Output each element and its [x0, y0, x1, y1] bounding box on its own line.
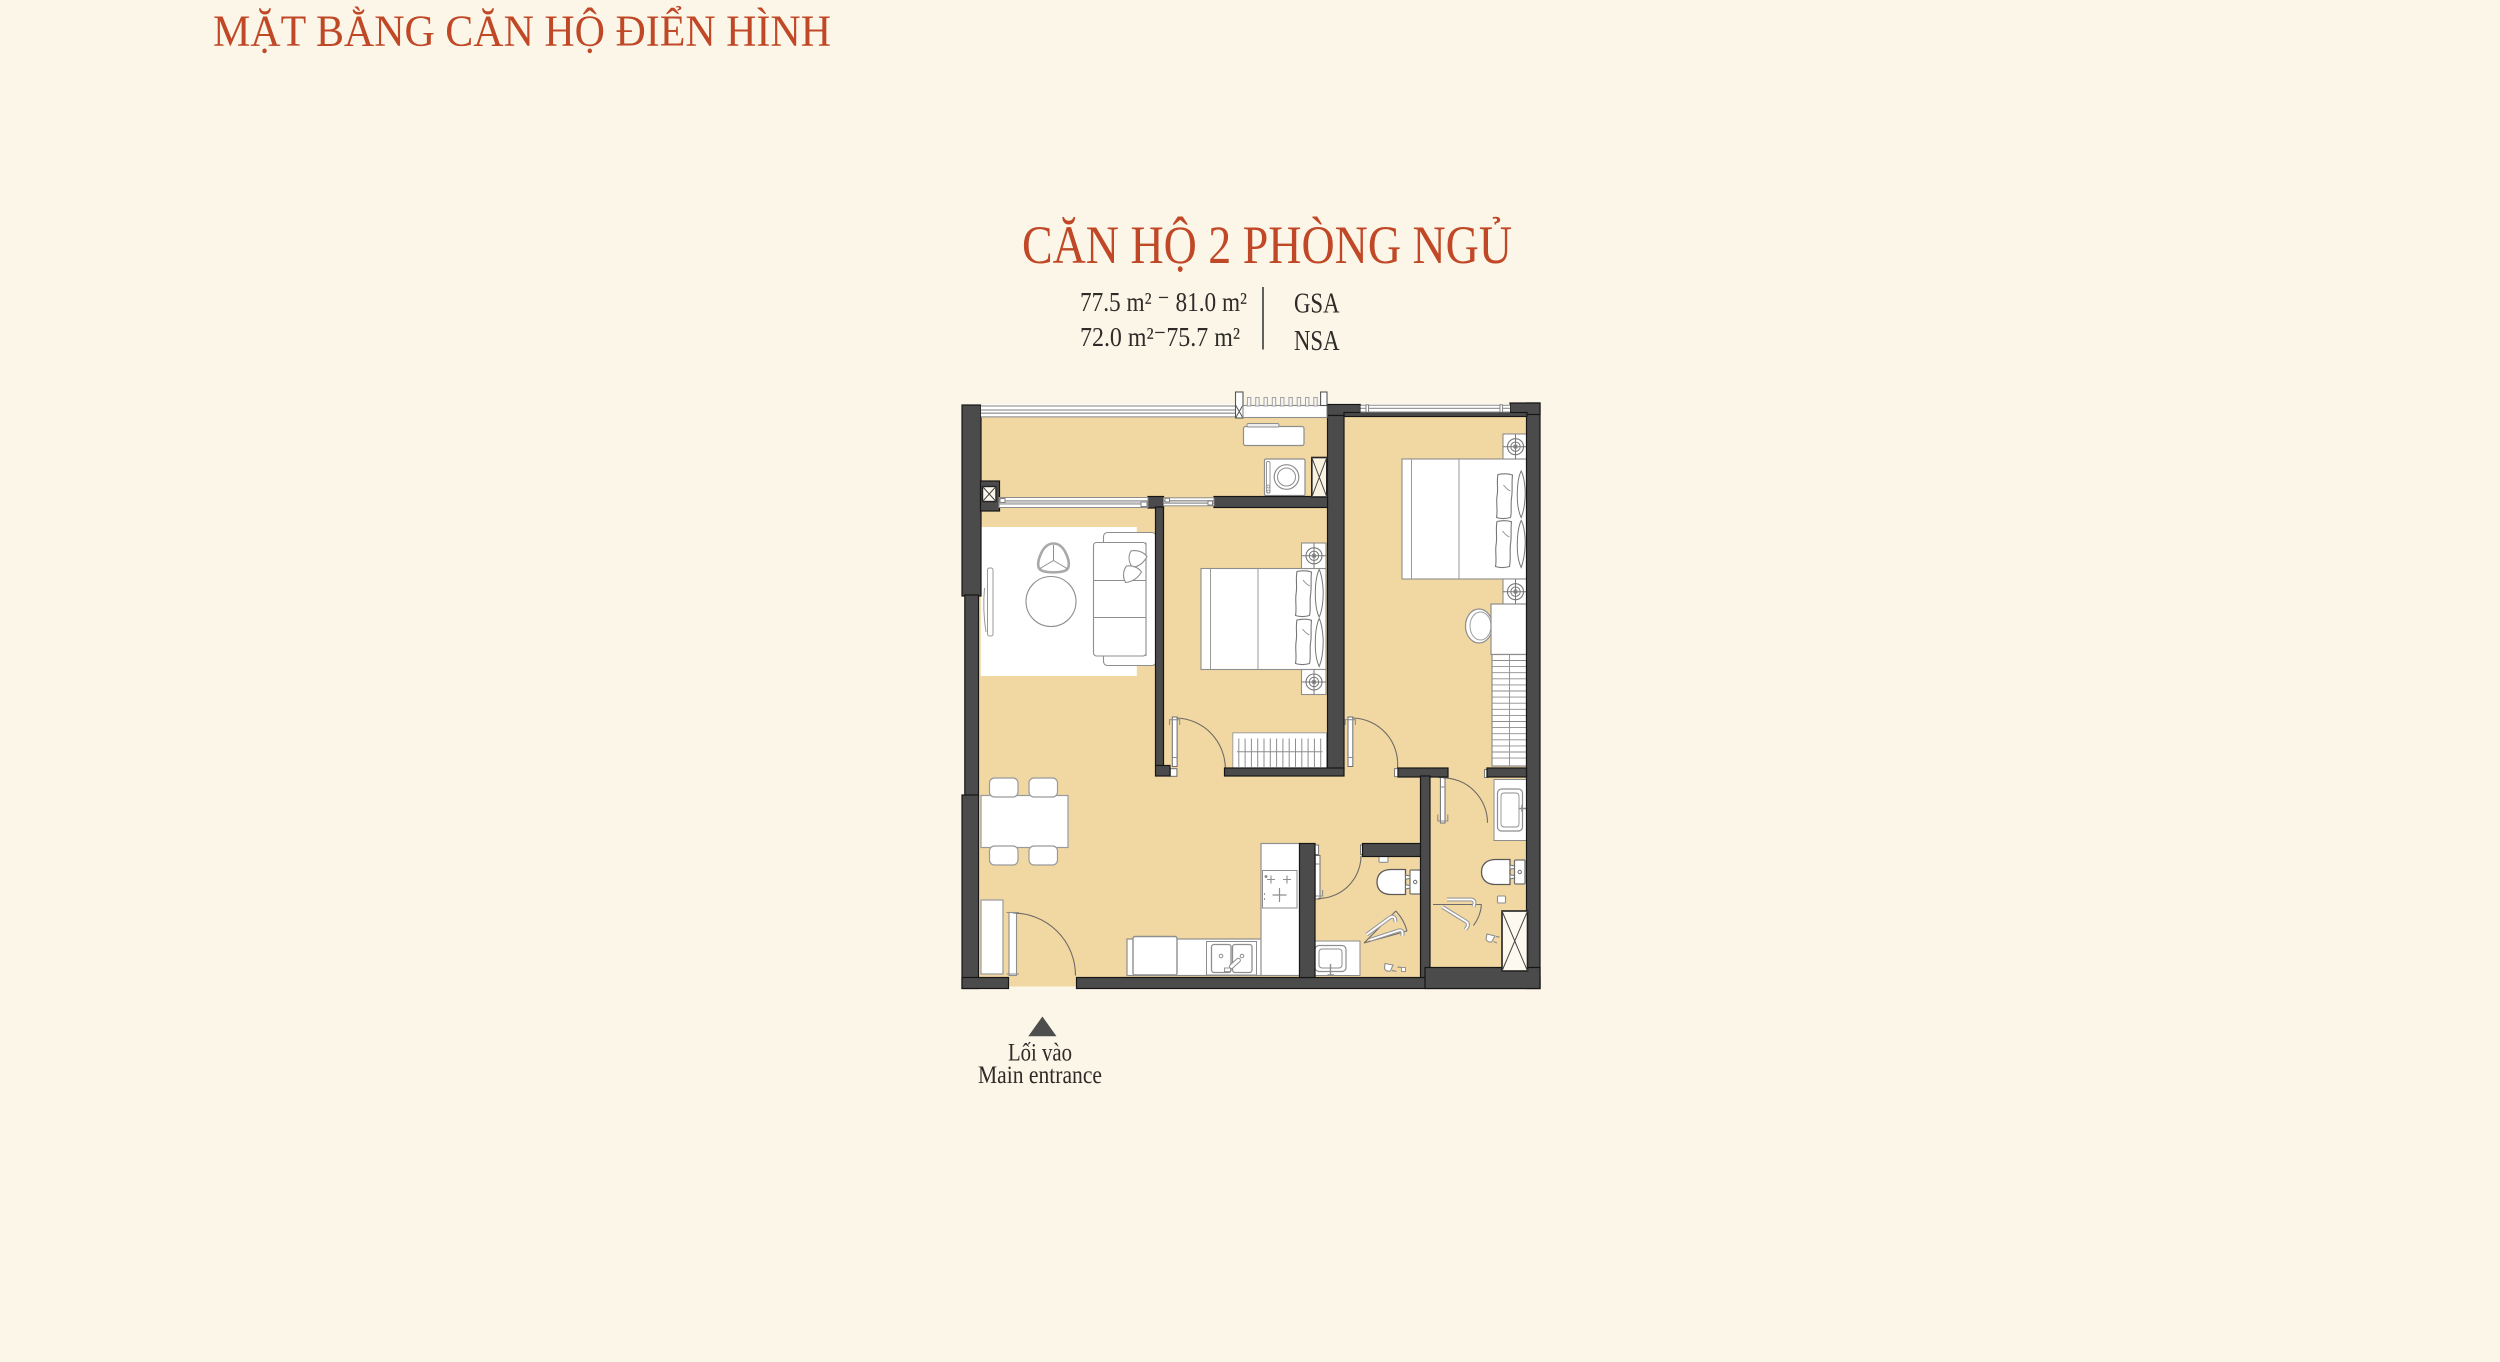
svg-text:CĂN HỘ 2 PHÒNG NGỦ: CĂN HỘ 2 PHÒNG NGỦ — [1022, 215, 1512, 275]
svg-text:GSA: GSA — [1294, 289, 1340, 320]
svg-text:72.0 m²⁻75.7 m²: 72.0 m²⁻75.7 m² — [1080, 322, 1240, 352]
svg-text:NSA: NSA — [1294, 326, 1340, 357]
svg-text:Main entrance: Main entrance — [978, 1062, 1102, 1089]
svg-text:77.5 m² ⁻ 81.0 m²: 77.5 m² ⁻ 81.0 m² — [1080, 287, 1247, 317]
svg-text:MẶT BẰNG CĂN HỘ ĐIỂN HÌNH: MẶT BẰNG CĂN HỘ ĐIỂN HÌNH — [213, 6, 831, 56]
